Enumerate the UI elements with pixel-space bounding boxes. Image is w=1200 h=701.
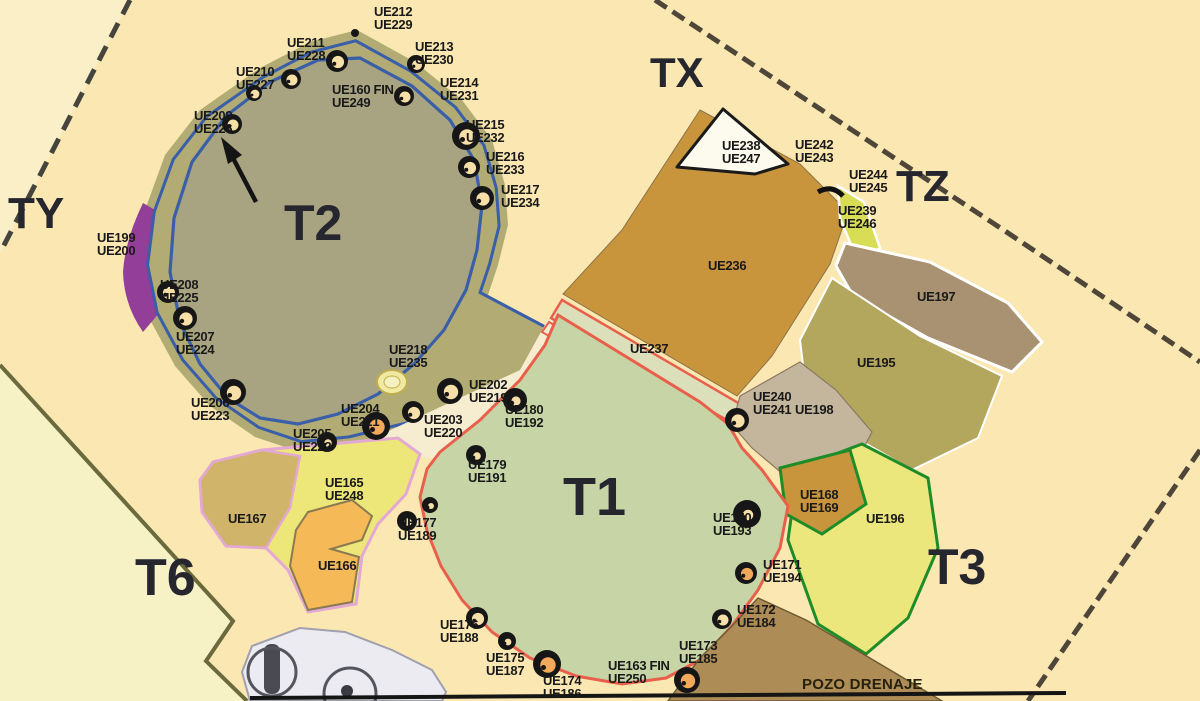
- ue-label: UE238 UE247: [722, 140, 760, 165]
- pit-ue218: [377, 370, 407, 394]
- ue-label: UE163 FIN UE250: [608, 660, 670, 685]
- posthole-icon: [326, 50, 348, 72]
- ue-label: UE202 UE219: [469, 379, 507, 404]
- ue-label: UE199 UE200: [97, 232, 135, 257]
- posthole-icon: [173, 306, 197, 330]
- ue-label: UE204 UE221: [341, 403, 379, 428]
- excavation-plan: TXTYTZT2T1T3T6UE212 UE229UE211 UE228UE21…: [0, 0, 1200, 701]
- ue-label: UE160 FIN UE249: [332, 84, 394, 109]
- ue-label: UE177 UE189: [398, 517, 436, 542]
- ue-label: UE175 UE187: [486, 652, 524, 677]
- ue-label: UE209 UE226: [194, 110, 232, 135]
- ue-label: UE179 UE191: [468, 459, 506, 484]
- ue-label: UE198: [795, 404, 833, 417]
- ue-label: UE172 UE184: [737, 604, 775, 629]
- ue-label: UE218 UE235: [389, 344, 427, 369]
- zone-label-T1: T1: [563, 470, 626, 524]
- ue-label: UE211 UE228: [287, 37, 325, 62]
- ue-label: UE165 UE248: [325, 477, 363, 502]
- zone-label-T2: T2: [284, 198, 342, 248]
- ue-label: UE213 UE230: [415, 41, 453, 66]
- posthole-icon: [281, 69, 301, 89]
- ue-label: UE168 UE169: [800, 489, 838, 514]
- boundary-line-bottom-right: [1028, 450, 1200, 701]
- ue-label: UE180 UE192: [505, 404, 543, 429]
- posthole-icon: [422, 497, 438, 513]
- ue-label: UE237: [630, 343, 668, 356]
- posthole-icon: [394, 86, 414, 106]
- zone-label-TZ: TZ: [896, 165, 950, 209]
- ue-label: UE167: [228, 513, 266, 526]
- ue-label: UE203 UE220: [424, 414, 462, 439]
- posthole-icon: [498, 632, 516, 650]
- ue-label: UE207 UE224: [176, 331, 214, 356]
- zone-label-TX: TX: [650, 52, 704, 94]
- ue-label: UE205 UE222: [293, 428, 331, 453]
- zone-label-T3: T3: [928, 542, 986, 592]
- posthole-icon: [351, 29, 359, 37]
- posthole-icon: [402, 401, 424, 423]
- zone-label-T6: T6: [135, 552, 196, 604]
- posthole-icon: [674, 667, 700, 693]
- posthole-icon: [712, 609, 732, 629]
- ue-label: UE242 UE243: [795, 139, 833, 164]
- modern-structure: [242, 628, 446, 701]
- ue-label: UE210 UE227: [236, 66, 274, 91]
- ue-label: UE244 UE245: [849, 169, 887, 194]
- posthole-icon: [725, 408, 749, 432]
- ue-label: UE195: [857, 357, 895, 370]
- ue-label: UE174 UE186: [543, 675, 581, 700]
- ue-label: UE216 UE233: [486, 151, 524, 176]
- ue-label: UE240 UE241: [753, 391, 791, 416]
- ue-label: UE173 UE185: [679, 640, 717, 665]
- ue-label: UE239 UE246: [838, 205, 876, 230]
- posthole-icon: [437, 378, 463, 404]
- ue-label: UE196: [866, 513, 904, 526]
- ue-label: UE214 UE231: [440, 77, 478, 102]
- ue-label: UE217 UE234: [501, 184, 539, 209]
- ue-label: UE212 UE229: [374, 6, 412, 31]
- ue-label: UE170 UE193: [713, 512, 751, 537]
- ue-label: UE236: [708, 260, 746, 273]
- ue-label: UE171 UE194: [763, 559, 801, 584]
- posthole-icon: [470, 186, 494, 210]
- ue-label: UE176 UE188: [440, 619, 478, 644]
- posthole-icon: [735, 562, 757, 584]
- ue-label: UE206 UE223: [191, 397, 229, 422]
- ue-label: POZO DRENAJE: [802, 679, 923, 692]
- ue-label: UE166: [318, 560, 356, 573]
- ue-label: UE197: [917, 291, 955, 304]
- zone-label-TY: TY: [8, 192, 64, 236]
- ue-label: UE208 UE225: [160, 279, 198, 304]
- posthole-icon: [458, 156, 480, 178]
- ue-label: UE215 UE232: [466, 119, 504, 144]
